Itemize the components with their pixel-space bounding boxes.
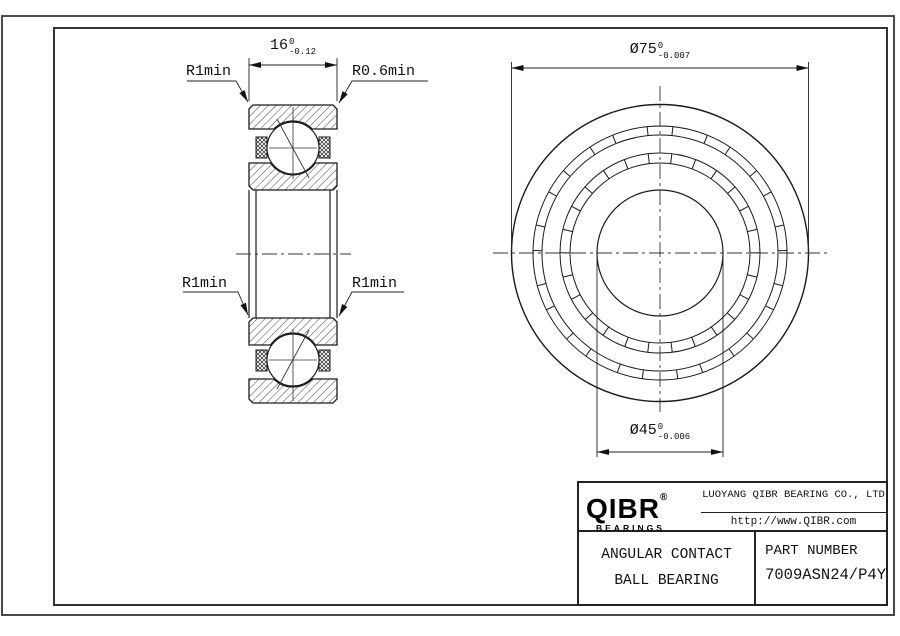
cage-section-top-left — [256, 137, 267, 158]
product-type-line2: BALL BEARING — [614, 568, 718, 594]
width-dim-tolerance: 0 -0.12 — [289, 37, 316, 58]
bore-dia-value: Ø45 — [630, 423, 657, 440]
company-name: LUOYANG QIBR BEARING CO., LTD — [701, 483, 886, 512]
engineering-drawing: 16 0 -0.12 Ø75 0 -0.007 Ø45 0 -0.006 R1m… — [0, 0, 900, 636]
outer-dia-value: Ø75 — [630, 42, 657, 59]
registered-mark: ® — [660, 492, 667, 503]
front-view — [493, 62, 827, 457]
cage-section-bottom-right — [319, 350, 330, 371]
title-block: QIBR® BEARINGS LUOYANG QIBR BEARING CO.,… — [577, 481, 888, 606]
outer-diameter-dimension: Ø75 0 -0.007 — [620, 42, 700, 62]
title-block-body-row: ANGULAR CONTACT BALL BEARING PART NUMBER… — [579, 532, 886, 604]
fillet-label-top-right: R0.6min — [352, 64, 415, 81]
part-number-cell: PART NUMBER 7009ASN24/P4Y — [756, 532, 886, 604]
fillet-label-top-left: R1min — [186, 64, 231, 81]
width-dimension: 16 0 -0.12 — [258, 38, 328, 58]
width-dim-lines — [249, 58, 337, 101]
width-dim-value: 16 — [270, 38, 288, 55]
fillet-label-bottom-left: R1min — [182, 276, 227, 293]
product-type: ANGULAR CONTACT BALL BEARING — [579, 532, 756, 604]
title-block-header-row: QIBR® BEARINGS LUOYANG QIBR BEARING CO.,… — [579, 483, 886, 532]
part-number-label: PART NUMBER — [765, 540, 886, 562]
section-view — [183, 58, 428, 403]
bore-dia-tolerance: 0 -0.006 — [658, 422, 690, 443]
cage-section-top-right — [319, 137, 330, 158]
logo-text: QIBR — [586, 493, 660, 524]
company-info: LUOYANG QIBR BEARING CO., LTD http://www… — [701, 483, 886, 530]
cage-section-bottom-left — [256, 350, 267, 371]
part-number-value: 7009ASN24/P4Y — [765, 562, 886, 588]
company-website: http://www.QIBR.com — [701, 513, 886, 530]
outer-dia-tolerance: 0 -0.007 — [658, 41, 690, 62]
company-logo: QIBR® BEARINGS — [579, 483, 701, 530]
fillet-label-bottom-right: R1min — [352, 276, 397, 293]
product-type-line1: ANGULAR CONTACT — [601, 542, 732, 568]
bore-diameter-dimension: Ø45 0 -0.006 — [620, 423, 700, 443]
